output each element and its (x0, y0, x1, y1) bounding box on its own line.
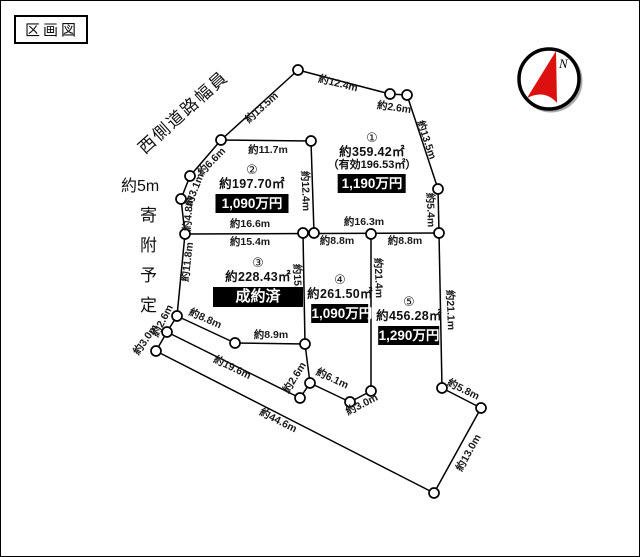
lot-area: 約456.28㎡ (376, 309, 442, 323)
vertex-marker (434, 228, 444, 238)
lot-status: 成約済 (213, 287, 303, 307)
lot-area: 約197.70㎡ (216, 177, 289, 191)
lot-number: ③ (213, 256, 303, 270)
vertex-marker (309, 228, 319, 238)
lot-number: ⑤ (376, 295, 442, 309)
lot-number: ④ (307, 273, 373, 287)
vertex-marker (366, 229, 376, 239)
dimension-label: 約5.4m (424, 193, 436, 228)
vertex-marker (151, 346, 161, 356)
road-width-label: 約5m (121, 172, 159, 196)
lot-block: ②約197.70㎡1,090万円 (216, 163, 289, 213)
dimension-label: 約8.9m (254, 330, 288, 341)
dimension-label: 約21.4m (372, 258, 384, 299)
vertex-marker (293, 65, 303, 75)
dimension-label: 約16.3m (344, 217, 384, 228)
vertex-marker (295, 393, 305, 403)
vertex-marker (300, 339, 310, 349)
dimension-label: 約15.4m (230, 237, 270, 248)
dimension-label: 約11.7m (248, 145, 288, 156)
compass-north-label: N (558, 56, 569, 71)
compass: N (519, 49, 581, 111)
boundary-line (438, 189, 439, 233)
lot-price: 1,190万円 (338, 174, 406, 193)
lot-effective-area: （有効196.53㎡） (328, 159, 417, 171)
lot-number: ② (216, 163, 289, 177)
lot-area: 約228.43㎡ (213, 270, 303, 284)
vertex-marker (305, 378, 315, 388)
dimension-label: 約21.1m (444, 290, 456, 331)
vertex-marker (216, 135, 226, 145)
vertex-marker (298, 228, 308, 238)
boundary-line (235, 343, 305, 344)
dimension-label: 約8.8m (388, 236, 422, 247)
dimension-label: 約8.8m (320, 236, 354, 247)
lot-area: 約261.50㎡ (307, 287, 373, 301)
boundary-line (221, 140, 311, 141)
lot-number: ① (328, 131, 417, 145)
lot-block: ③約228.43㎡成約済 (213, 256, 303, 307)
lot-map-canvas: N 区画図 西側道路幅員 約5m 寄附予定 約13.5m約12.4m約2.6m約… (0, 0, 640, 557)
lot-area: 約359.42㎡ (328, 145, 417, 159)
boundary-line (311, 141, 314, 233)
lot-block: ①約359.42㎡（有効196.53㎡）1,190万円 (328, 131, 417, 193)
lot-block: ⑤約456.28㎡1,290万円 (376, 295, 442, 345)
dimension-label: 約12.4m (299, 171, 311, 212)
vertex-marker (306, 136, 316, 146)
vertex-marker (476, 403, 486, 413)
lot-price: 1,090万円 (311, 304, 368, 323)
dimension-label: 約16.6m (230, 219, 270, 230)
donation-note: 寄附予定 (134, 206, 159, 326)
lot-price: 1,290万円 (378, 326, 439, 345)
map-title: 区画図 (14, 15, 88, 44)
vertex-marker (429, 488, 439, 498)
vertex-marker (402, 90, 412, 100)
lot-price: 1,090万円 (216, 194, 289, 213)
vertex-marker (230, 338, 240, 348)
vertex-marker (385, 89, 395, 99)
lot-block: ④約261.50㎡1,090万円 (307, 273, 373, 323)
